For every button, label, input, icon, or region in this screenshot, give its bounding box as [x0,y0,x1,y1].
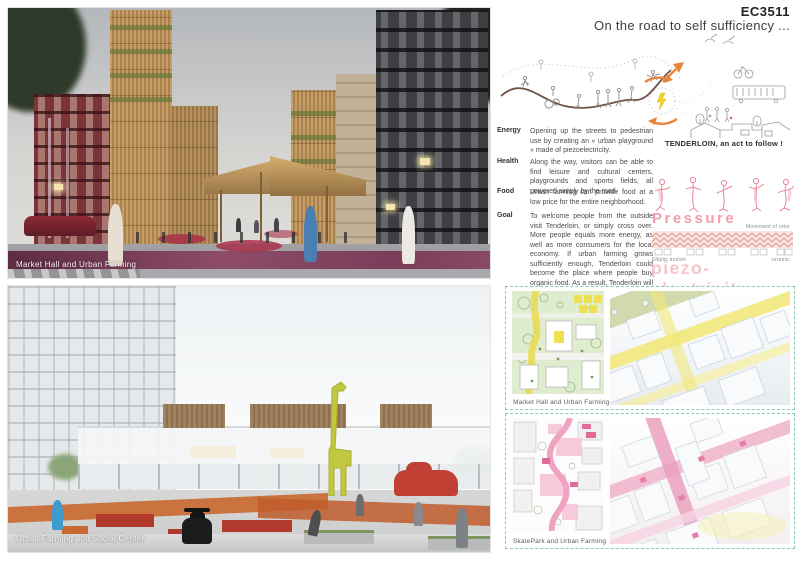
axon-view-yellow [610,291,790,405]
section-energy: Energy Opening up the streets to pedestr… [497,127,653,156]
section-text: Urban farming can provide food at a low … [530,188,653,207]
lit-window [54,184,63,190]
section-label: Energy [497,127,525,156]
zigzag-pattern [652,231,793,248]
piezo-band-svg [652,231,793,257]
pressure-label: Pressure [652,210,736,227]
parked-car [24,216,96,236]
distant-pedestrian [236,218,241,232]
pedestrian-white-coat [108,204,123,266]
dance-figures-svg [650,175,798,212]
competition-board: Market Hall and Urban Farming [0,0,800,561]
lit-window [386,204,395,210]
pedestrian-white-dress [402,206,415,264]
houses-sketch [691,122,790,138]
interior-glow [190,446,236,458]
tree-sketch [696,114,704,124]
lit-window [420,158,430,165]
section-food: Food Urban farming can provide food at a… [497,188,653,207]
road-diagram-svg [495,30,800,140]
streetlamp-markers [539,59,637,82]
dark-brick-building [376,10,488,252]
render-caption: Urban Farming and Social Center [16,534,144,543]
render-market-hall: Market Hall and Urban Farming [8,8,490,278]
red-play-sculpture [394,470,458,496]
timber-roof-box [380,404,432,428]
render-caption: Market Hall and Urban Farming [16,260,136,269]
ducks-sketch [705,34,735,44]
plan-panel-skatepark: SkatePark and Urban Farming [505,413,795,549]
people-sketch [705,111,709,122]
ceramic-elements [655,249,792,255]
sitting-woman [182,518,212,544]
green-dot [709,115,711,117]
red-dot [730,117,732,119]
section-text: Opening up the streets to pedestrian use… [530,127,653,156]
street [512,313,604,318]
distant-pedestrian [254,220,259,233]
road-path [501,70,671,108]
child [356,494,364,516]
site-plan-green [512,291,604,394]
watermark-glow [698,512,786,540]
plan-panel-market-hall: Market Hall and Urban Farming [505,286,795,410]
energy-cycle [645,75,677,125]
site-plan-pink [512,418,604,531]
board-code: EC3511 [741,4,790,19]
tree [48,454,82,480]
bollard-row [136,232,350,243]
plan-caption: Market Hall and Urban Farming [513,399,609,406]
dancing-figures [655,177,794,212]
tower-plants [110,14,172,102]
sketch-icons [691,34,790,138]
section-label: Food [497,188,525,207]
bus-sketch [733,86,785,99]
axon-view-pink [610,418,790,544]
distant-pedestrian [274,218,279,232]
movement-of-rotor-label: Movement of rotor [746,224,790,230]
red-paving-block [96,514,154,527]
giraffe-sculpture [308,378,366,496]
tenderloin-caption: TENDERLOIN, an act to follow ! [648,139,800,148]
pedestrian [456,508,468,548]
interior-glow [270,448,304,458]
render-social-center: Urban Farming and Social Center [8,286,490,552]
child-blue [52,500,63,530]
timber-roof-box [163,404,225,428]
child [414,502,423,526]
crosswalk [8,269,140,278]
red-paving-block [222,520,292,532]
pedestrian-blue-jacket [304,206,317,262]
plan-caption: SkatePark and Urban Farming [513,538,606,545]
